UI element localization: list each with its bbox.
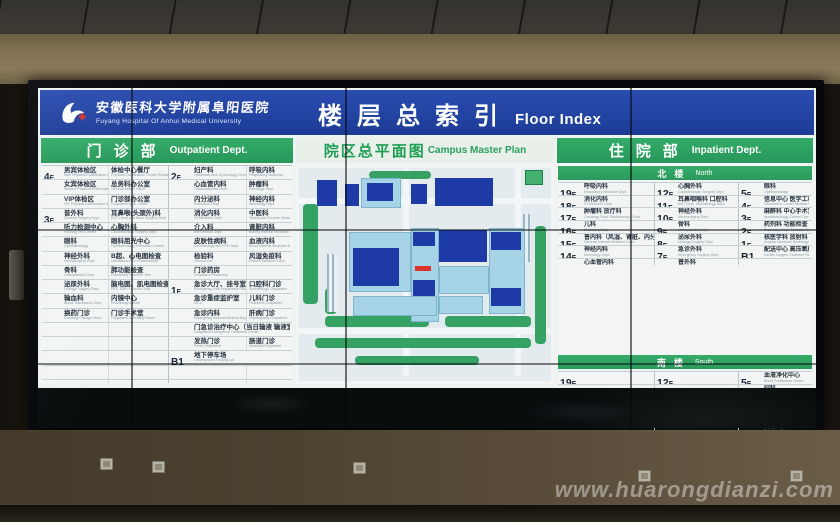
floor-label: 17F (558, 208, 582, 220)
outpatient-panel: 门诊部 Outpatient Dept. 4F男宾体检区Men Physical… (41, 138, 293, 384)
south-building-bar: 南楼 South (558, 355, 812, 369)
dept-cell: 脑电图、肌电图检查EEG EMG Function Test (108, 280, 168, 293)
dept-cell: B超、心电图检查Ultrasound ECG Examination (108, 252, 168, 265)
dept-cell: 换药门诊Dressing Change Clinic (62, 309, 108, 322)
dept-cell: 心胸外科Cardiothoracic Surgery Dept. (676, 183, 738, 195)
dept-cell: 皮肤性病科Dermatology and STD Dept. (192, 237, 246, 250)
floor-label (42, 337, 62, 350)
dept-cell (246, 380, 290, 383)
dept-cell: 神经内科Neurology Dept. (246, 195, 290, 208)
bezel-seam (30, 229, 822, 231)
dept-cell: 神经内科Neurology Dept. (582, 246, 654, 258)
dept-cell: 血液内科Blood Internal Medicine Dept. (246, 237, 290, 250)
watermark-text: www.huarongdianzi.com (555, 477, 834, 503)
floor-label: 8F (654, 234, 676, 246)
inpatient-row: 19F12F5F血液净化中心Blood Purification Center (558, 372, 812, 385)
dept-cell: 耳鼻喉(头颈外)科ENT Head and Neck Surgery Dept. (108, 209, 168, 222)
north-building-bar: 北楼 North (558, 166, 812, 180)
floor-label (738, 259, 762, 265)
dept-cell (246, 266, 290, 279)
dept-cell: 门诊手术室Outpatient Operating Room (108, 309, 168, 322)
floor-label (42, 309, 62, 322)
floor-label: 3F (738, 208, 762, 220)
bezel-seam (630, 84, 632, 430)
dept-cell: 肿瘤科 放疗科Oncology Dept. Radiotherapy Dept. (582, 208, 654, 220)
outpatient-row: 眼科Ophthalmology眼科屈光中心Ophthalmology Refra… (42, 237, 292, 251)
map-building (435, 178, 493, 206)
floor-label (42, 195, 62, 208)
floor-label: B1 (738, 246, 762, 258)
dept-cell: 门急诊治疗中心（当日输液 输液室）Outpatient Emergency Tr… (192, 323, 290, 336)
dept-cell (246, 366, 290, 379)
floor-label: 13F (558, 259, 582, 265)
outpatient-row: 门急诊治疗中心（当日输液 输液室）Outpatient Emergency Tr… (42, 323, 292, 337)
dept-cell: 急诊外科Emergency Surgery Dept. (676, 246, 738, 258)
floor-label: 1F (738, 234, 762, 246)
floor-label: 6F (654, 259, 676, 265)
dept-cell (582, 372, 654, 384)
dept-cell: 体检中心餐厅Physical Examination Center Restau… (108, 166, 168, 179)
dept-cell: 口腔科门诊Stomatology Outpatient (246, 280, 290, 293)
floor-label (168, 309, 192, 322)
dept-cell: 眼科Ophthalmology (762, 183, 809, 195)
inpatient-row: 13F心血管内科Cardiovascular Dept.6F普外科General… (558, 259, 812, 265)
dept-cell (62, 323, 108, 336)
dept-cell: 中医科Traditional Chinese Medicine Dept. (246, 209, 290, 222)
dept-cell: 男宾体检区Men Physical Examination Area (62, 166, 108, 179)
screen-bottom-area (38, 388, 816, 428)
dept-cell: 急诊内科Emergency Internal Medical Dept. (192, 309, 246, 322)
floor-label: 5F (738, 183, 762, 195)
dept-cell: 总务科办公室General Affairs Office (108, 180, 168, 193)
photo-scene: 安徽医科大学附属阜阳医院 Fuyang Hospital Of Anhui Me… (0, 0, 840, 522)
dept-cell: 肠道门诊Intestinal Outpatient (246, 337, 290, 350)
dept-cell: 普外科General Surgery Dept. (62, 209, 108, 222)
outpatient-row: 泌尿外科Urology Surgery Dept.脑电图、肌电图检查EEG EM… (42, 280, 292, 294)
floor-label (168, 209, 192, 222)
ceiling-beam (0, 34, 840, 84)
inpatient-row: 18F消化内科GI Medicine Dept.11F耳鼻咽喉科 口腔科ENT … (558, 196, 812, 209)
floor-label (42, 280, 62, 293)
dept-cell: 内分泌科Endocrine Dept. (192, 195, 246, 208)
dept-cell: 输血科Blood Transfusion Dept. (62, 294, 108, 307)
dept-cell: 泌尿外科Urology Surgery Dept. (676, 234, 738, 246)
floor-label: 19F (558, 372, 582, 384)
outpatient-row: 输血科Blood Transfusion Dept.内镜中心Endoscopy … (42, 294, 292, 308)
map-green-area (535, 226, 546, 344)
inpatient-row: 19F呼吸内科Respiratory Medicine Dept.12F心胸外科… (558, 183, 812, 196)
dept-cell: 核医学科 放射科 出入院处Nuclear Medicine Radiology … (762, 234, 809, 246)
north-label-en: North (695, 170, 712, 177)
wall-socket (353, 462, 366, 474)
floor-label (168, 252, 192, 265)
dept-cell: 心血管内科Cardiovascular Dept. (192, 180, 246, 193)
campus-panel: 院区总平面图 Campus Master Plan (296, 138, 554, 384)
map-building (367, 183, 393, 201)
floor-label: 12F (654, 372, 676, 384)
wall-bracket (9, 250, 24, 300)
dept-cell: 泌尿外科Urology Surgery Dept. (62, 280, 108, 293)
board-header: 安徽医科大学附属阜阳医院 Fuyang Hospital Of Anhui Me… (40, 90, 814, 135)
dept-cell (192, 380, 246, 383)
dept-cell: 肿瘤科Oncology Dept. (246, 180, 290, 193)
dept-cell (192, 366, 246, 379)
outpatient-row: 神经外科Neurosurgery Dept.B超、心电图检查Ultrasound… (42, 252, 292, 266)
floor-label (42, 180, 62, 193)
dept-cell (108, 337, 168, 350)
floor-label: 12F (654, 183, 676, 195)
outpatient-row: 发热门诊Fever Outpatient肠道门诊Intestinal Outpa… (42, 337, 292, 351)
bezel-seam (131, 84, 133, 430)
map-building (491, 232, 521, 250)
floor-label: 4F (42, 166, 62, 179)
dept-cell: 急诊重症监护室EICU (192, 294, 246, 307)
map-building (439, 230, 487, 262)
inpatient-row: 16F儿科Pediatrics Dept.9F骨科Orthopaedics De… (558, 221, 812, 234)
dept-cell: 检验科Clinical Lab (192, 252, 246, 265)
dept-cell: 发热门诊Fever Outpatient (192, 337, 246, 350)
wall-socket (152, 461, 165, 473)
campus-map (299, 168, 551, 381)
inpatient-row: 14F神经内科Neurology Dept.7F急诊外科Emergency Su… (558, 246, 812, 259)
hospital-name-zh: 安徽医科大学附属阜阳医院 (95, 97, 271, 116)
dept-cell: 儿科门诊Pediatrics Outpatient (246, 294, 290, 307)
dept-cell: VIP体检区VIP Physical Examination Area (62, 195, 108, 208)
floor-index-board: 安徽医科大学附属阜阳医院 Fuyang Hospital Of Anhui Me… (38, 88, 816, 388)
outpatient-header-zh: 门诊部 (87, 140, 168, 161)
dept-cell: 内镜中心Endoscopy Center (108, 294, 168, 307)
floor-label (42, 380, 62, 383)
dept-cell (62, 380, 108, 383)
outpatient-row (42, 380, 292, 383)
campus-header-en: Campus Master Plan (428, 145, 526, 156)
dept-cell: 门诊部办公室Outpatient Dept. Office (108, 195, 168, 208)
dept-cell: 消化内科GI Medicine Dept. (582, 196, 654, 208)
dept-cell: 心血管内科Cardiovascular Dept. (582, 259, 654, 265)
floor-label (168, 237, 192, 250)
outpatient-header-en: Outpatient Dept. (170, 145, 248, 156)
north-floor-table: 19F呼吸内科Respiratory Medicine Dept.12F心胸外科… (558, 182, 812, 265)
outpatient-row: 女宾体检区Women Physical Examination Area总务科办… (42, 180, 292, 194)
map-building (317, 180, 337, 206)
floor-label: 1F (168, 280, 192, 293)
floor-label: 11F (654, 196, 676, 208)
dept-cell: 急诊大厅、挂号室Emergency Hall Registration Room (192, 280, 246, 293)
map-parking-strip (327, 254, 337, 312)
ceiling (0, 0, 840, 34)
map-building (345, 184, 359, 206)
floor-label (42, 237, 62, 250)
floor-label (168, 266, 192, 279)
dept-cell: 风湿免疫科Rheum Medicine Dept. (246, 252, 290, 265)
map-building (439, 296, 483, 314)
hospital-name-block: 安徽医科大学附属阜阳医院 Fuyang Hospital Of Anhui Me… (96, 97, 270, 125)
inpatient-header-en: Inpatient Dept. (692, 145, 761, 156)
floor-label: 5F (738, 372, 762, 384)
map-building (439, 266, 489, 294)
outpatient-row: 换药门诊Dressing Change Clinic门诊手术室Outpatien… (42, 309, 292, 323)
floor-label (42, 323, 62, 336)
dept-cell: 骨科Orthopaedics Dept. (62, 266, 108, 279)
inpatient-panel: 住院部 Inpatient Dept. 北楼 North 19F呼吸内科Resp… (557, 138, 813, 384)
map-green-area (303, 204, 318, 304)
dept-cell: 门诊药房Outpatient Pharmacy (192, 266, 246, 279)
floor-label (42, 294, 62, 307)
dept-cell: 血液净化中心Blood Purification Center (762, 372, 809, 384)
outpatient-row (42, 366, 292, 380)
dept-cell: 女宾体检区Women Physical Examination Area (62, 180, 108, 193)
dept-cell: 普外科General Surgery Dept. (676, 259, 738, 265)
hospital-logo-icon (56, 96, 90, 130)
dept-cell: 神经外科Neurosurgery Dept. (676, 208, 738, 220)
dept-cell: 呼吸内科Respiratory Medicine (246, 166, 290, 179)
floor-label (168, 380, 192, 383)
board-title-zh: 楼层总索引 (318, 96, 513, 131)
south-label-zh: 南楼 (657, 356, 691, 369)
dept-cell: 神经外科Neurosurgery Dept. (62, 252, 108, 265)
floor-label (42, 252, 62, 265)
floor-label: 15F (558, 234, 582, 246)
map-building (491, 288, 521, 306)
dept-cell (62, 366, 108, 379)
floor-label (42, 266, 62, 279)
dept-cell: 肺功能检查Pulmonary Function Test (108, 266, 168, 279)
bezel-seam (345, 84, 347, 430)
inpatient-header: 住院部 Inpatient Dept. (557, 138, 813, 163)
you-are-here-marker (415, 266, 431, 271)
floor-label: 18F (558, 196, 582, 208)
map-building (353, 296, 437, 316)
board-title: 楼层总索引 Floor Index (318, 96, 601, 131)
floor-label: 3F (42, 209, 62, 222)
map-building (411, 184, 427, 204)
outpatient-header: 门诊部 Outpatient Dept. (41, 138, 293, 163)
map-building (413, 232, 435, 246)
floor (0, 505, 840, 522)
dept-cell: 消化内科GI Medicine Dept. (192, 209, 246, 222)
hospital-name-en: Fuyang Hospital Of Anhui Medical Univers… (96, 118, 270, 125)
dept-cell: 麻醉科 中心手术室Anesthesiology Central Operatin… (762, 208, 809, 220)
floor-label (168, 323, 192, 336)
inpatient-row: 17F肿瘤科 放疗科Oncology Dept. Radiotherapy De… (558, 208, 812, 221)
outpatient-row: 4F男宾体检区Men Physical Examination Area体检中心… (42, 166, 292, 180)
floor-label (168, 195, 192, 208)
dept-cell (676, 372, 738, 384)
dept-cell: 妇产科Obstetrics and Gynecology Dept. (192, 166, 246, 179)
dept-cell: 呼吸内科Respiratory Medicine Dept. (582, 183, 654, 195)
outpatient-table: 4F男宾体检区Men Physical Examination Area体检中心… (42, 165, 292, 383)
map-green-area (445, 316, 531, 327)
floor-label: 14F (558, 246, 582, 258)
dept-cell: 眼科屈光中心Ophthalmology Refraction Center (108, 237, 168, 250)
dept-cell: 配送中心 高压氧舱 地下车库Center Oxygen Chamber Park… (762, 246, 809, 258)
floor-label (168, 180, 192, 193)
inpatient-row: 15F普内科（风湿、肾脏、内分泌）General Internal Medici… (558, 234, 812, 247)
campus-header: 院区总平面图 Campus Master Plan (296, 138, 554, 163)
floor-label: 10F (654, 208, 676, 220)
dept-cell: 普内科（风湿、肾脏、内分泌）General Internal Medicine … (582, 234, 654, 246)
wall-socket (100, 458, 113, 470)
dept-cell (762, 259, 809, 265)
outpatient-row: VIP体检区VIP Physical Examination Area门诊部办公… (42, 195, 292, 209)
dept-cell (108, 323, 168, 336)
board-title-en: Floor Index (515, 111, 601, 128)
dept-cell (62, 337, 108, 350)
map-green-area (315, 338, 531, 348)
map-building (353, 248, 399, 286)
outpatient-row: 3F普外科General Surgery Dept.耳鼻喉(头颈外)科ENT H… (42, 209, 292, 223)
floor-label: 2F (168, 166, 192, 179)
floor-label (168, 366, 192, 379)
dept-cell: 信息中心 医学工程部Information Center Medical Eng… (762, 196, 809, 208)
map-road (299, 328, 551, 334)
map-green-area (525, 170, 543, 185)
inpatient-header-zh: 住院部 (609, 140, 690, 161)
campus-header-zh: 院区总平面图 (324, 140, 426, 161)
floor-label: 7F (654, 246, 676, 258)
dept-cell (108, 366, 168, 379)
floor-label: 4F (738, 196, 762, 208)
floor-label (42, 366, 62, 379)
outpatient-row: 骨科Orthopaedics Dept.肺功能检查Pulmonary Funct… (42, 266, 292, 280)
dept-cell: 肝病门诊Hepatopathy Outpatient (246, 309, 290, 322)
dept-cell: 眼科Ophthalmology (62, 237, 108, 250)
floor-label (168, 337, 192, 350)
dept-cell (108, 380, 168, 383)
north-label-zh: 北楼 (657, 167, 691, 180)
video-wall-screen: 安徽医科大学附属阜阳医院 Fuyang Hospital Of Anhui Me… (28, 80, 824, 432)
dept-cell: 耳鼻咽喉科 口腔科ENT Dept. Stomatology Dept. (676, 196, 738, 208)
bezel-seam (30, 363, 822, 365)
floor-label: 19F (558, 183, 582, 195)
floor-label (168, 294, 192, 307)
